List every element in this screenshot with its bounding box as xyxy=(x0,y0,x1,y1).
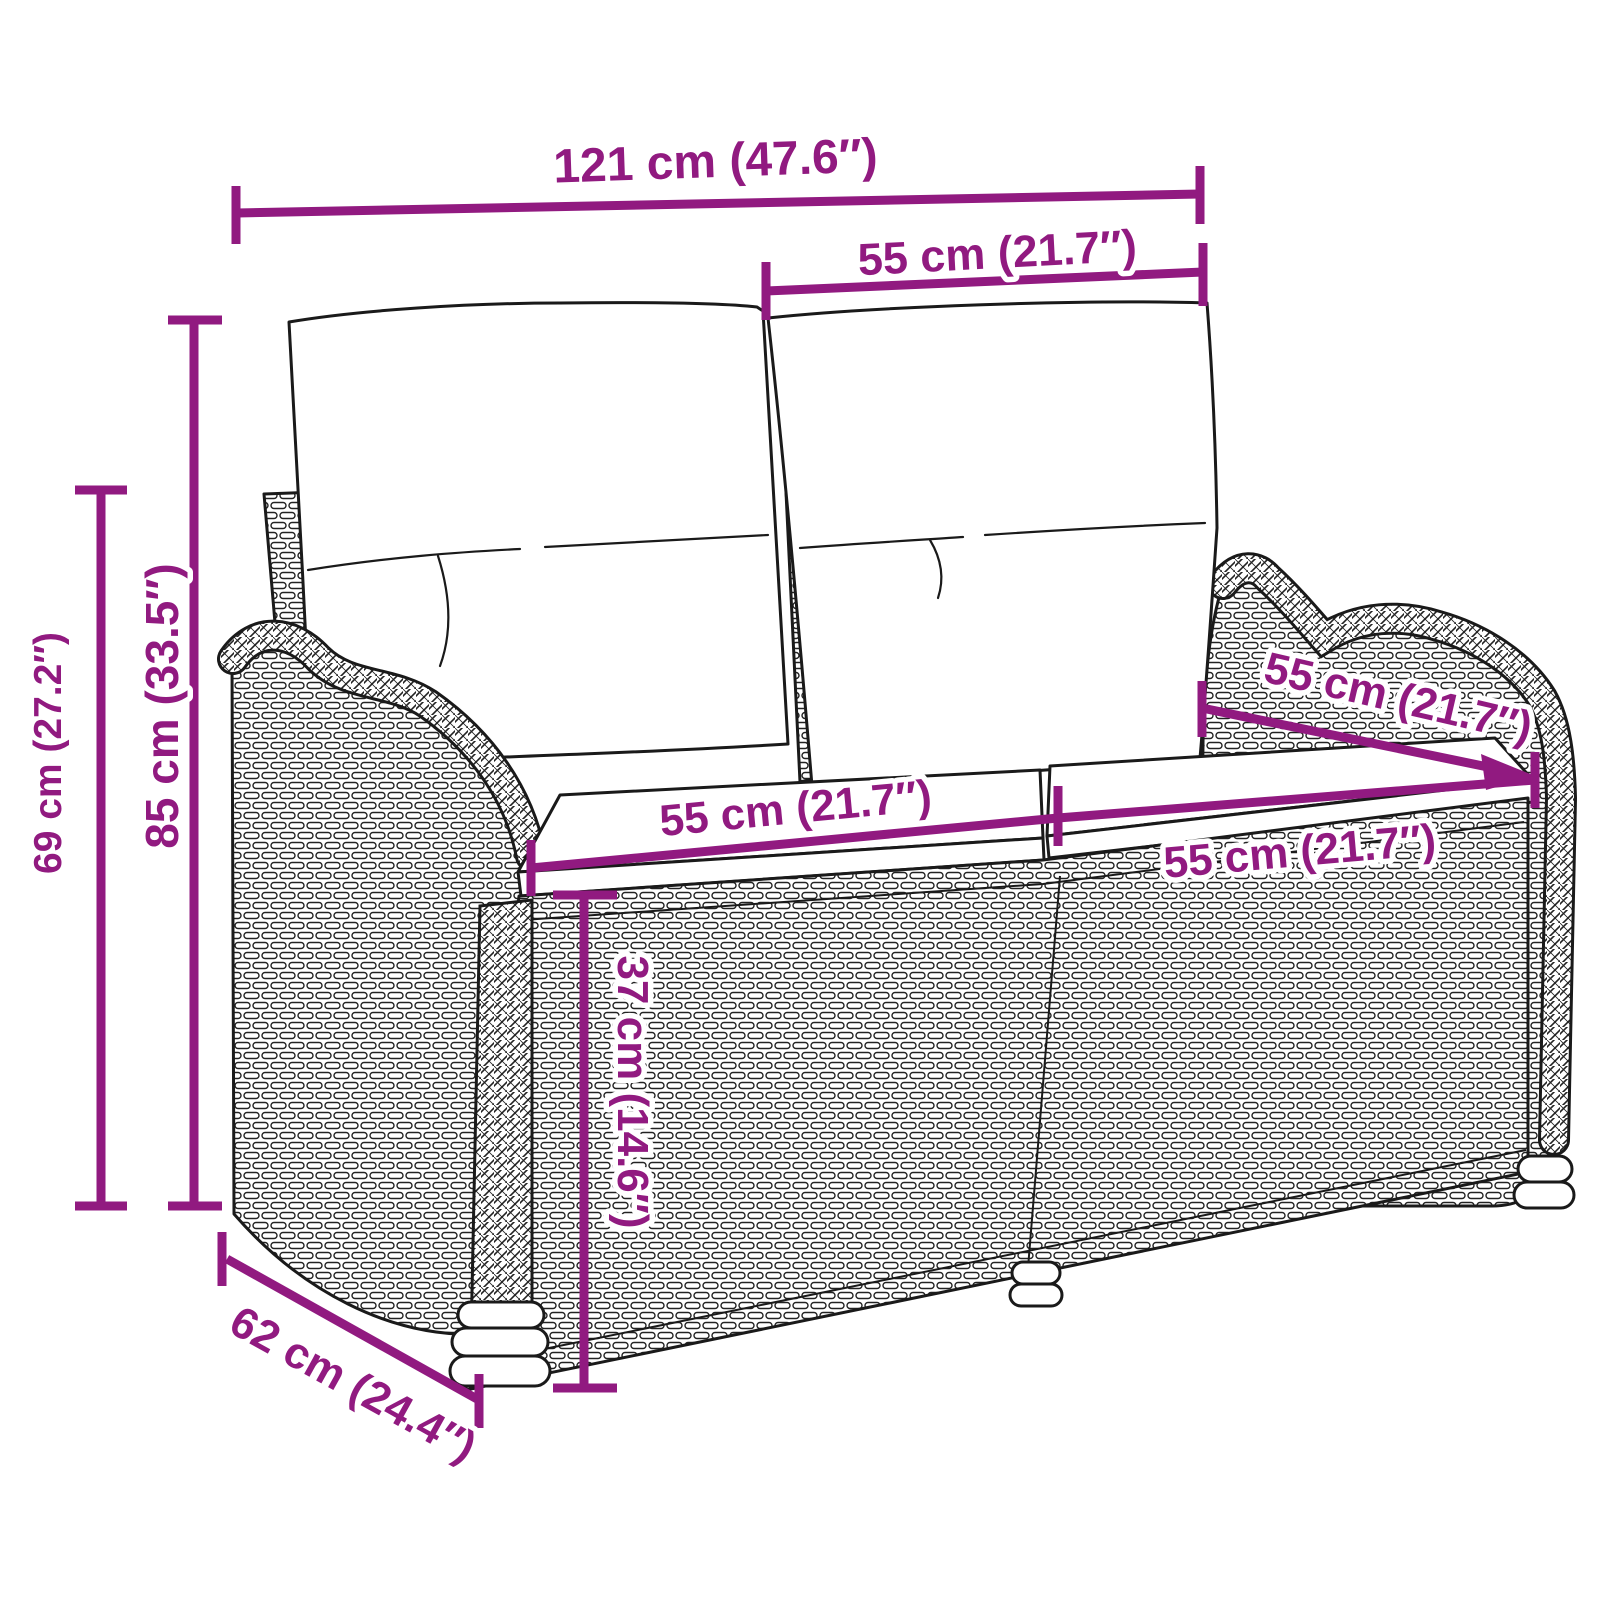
right-foot xyxy=(1514,1182,1574,1208)
dimension-seat-height-label: 37 cm (14.6″) xyxy=(608,955,657,1228)
garden-bench-dimension-diagram: 121 cm (47.6″) 55 cm (21.7″) 85 cm (33.5… xyxy=(0,0,1600,1600)
dimension-armrest-height: 69 cm (27.2″) xyxy=(27,490,127,1206)
middle-foot xyxy=(1010,1284,1062,1306)
right-foot xyxy=(1518,1156,1572,1182)
dimension-overall-width-label: 121 cm (47.6″) xyxy=(552,129,878,193)
dimension-overall-height-label: 85 cm (33.5″) xyxy=(136,563,188,848)
front-left-foot xyxy=(452,1328,548,1356)
back-cushion-right xyxy=(768,302,1217,786)
dimension-overall-height: 85 cm (33.5″) xyxy=(136,320,222,1206)
front-left-foot xyxy=(450,1356,550,1386)
dimension-line xyxy=(237,194,1200,213)
front-left-foot xyxy=(458,1302,544,1328)
dimension-armrest-height-label: 69 cm (27.2″) xyxy=(27,632,70,874)
dimension-diagram-page: 121 cm (47.6″) 55 cm (21.7″) 85 cm (33.5… xyxy=(0,0,1600,1600)
middle-foot xyxy=(1012,1262,1060,1284)
